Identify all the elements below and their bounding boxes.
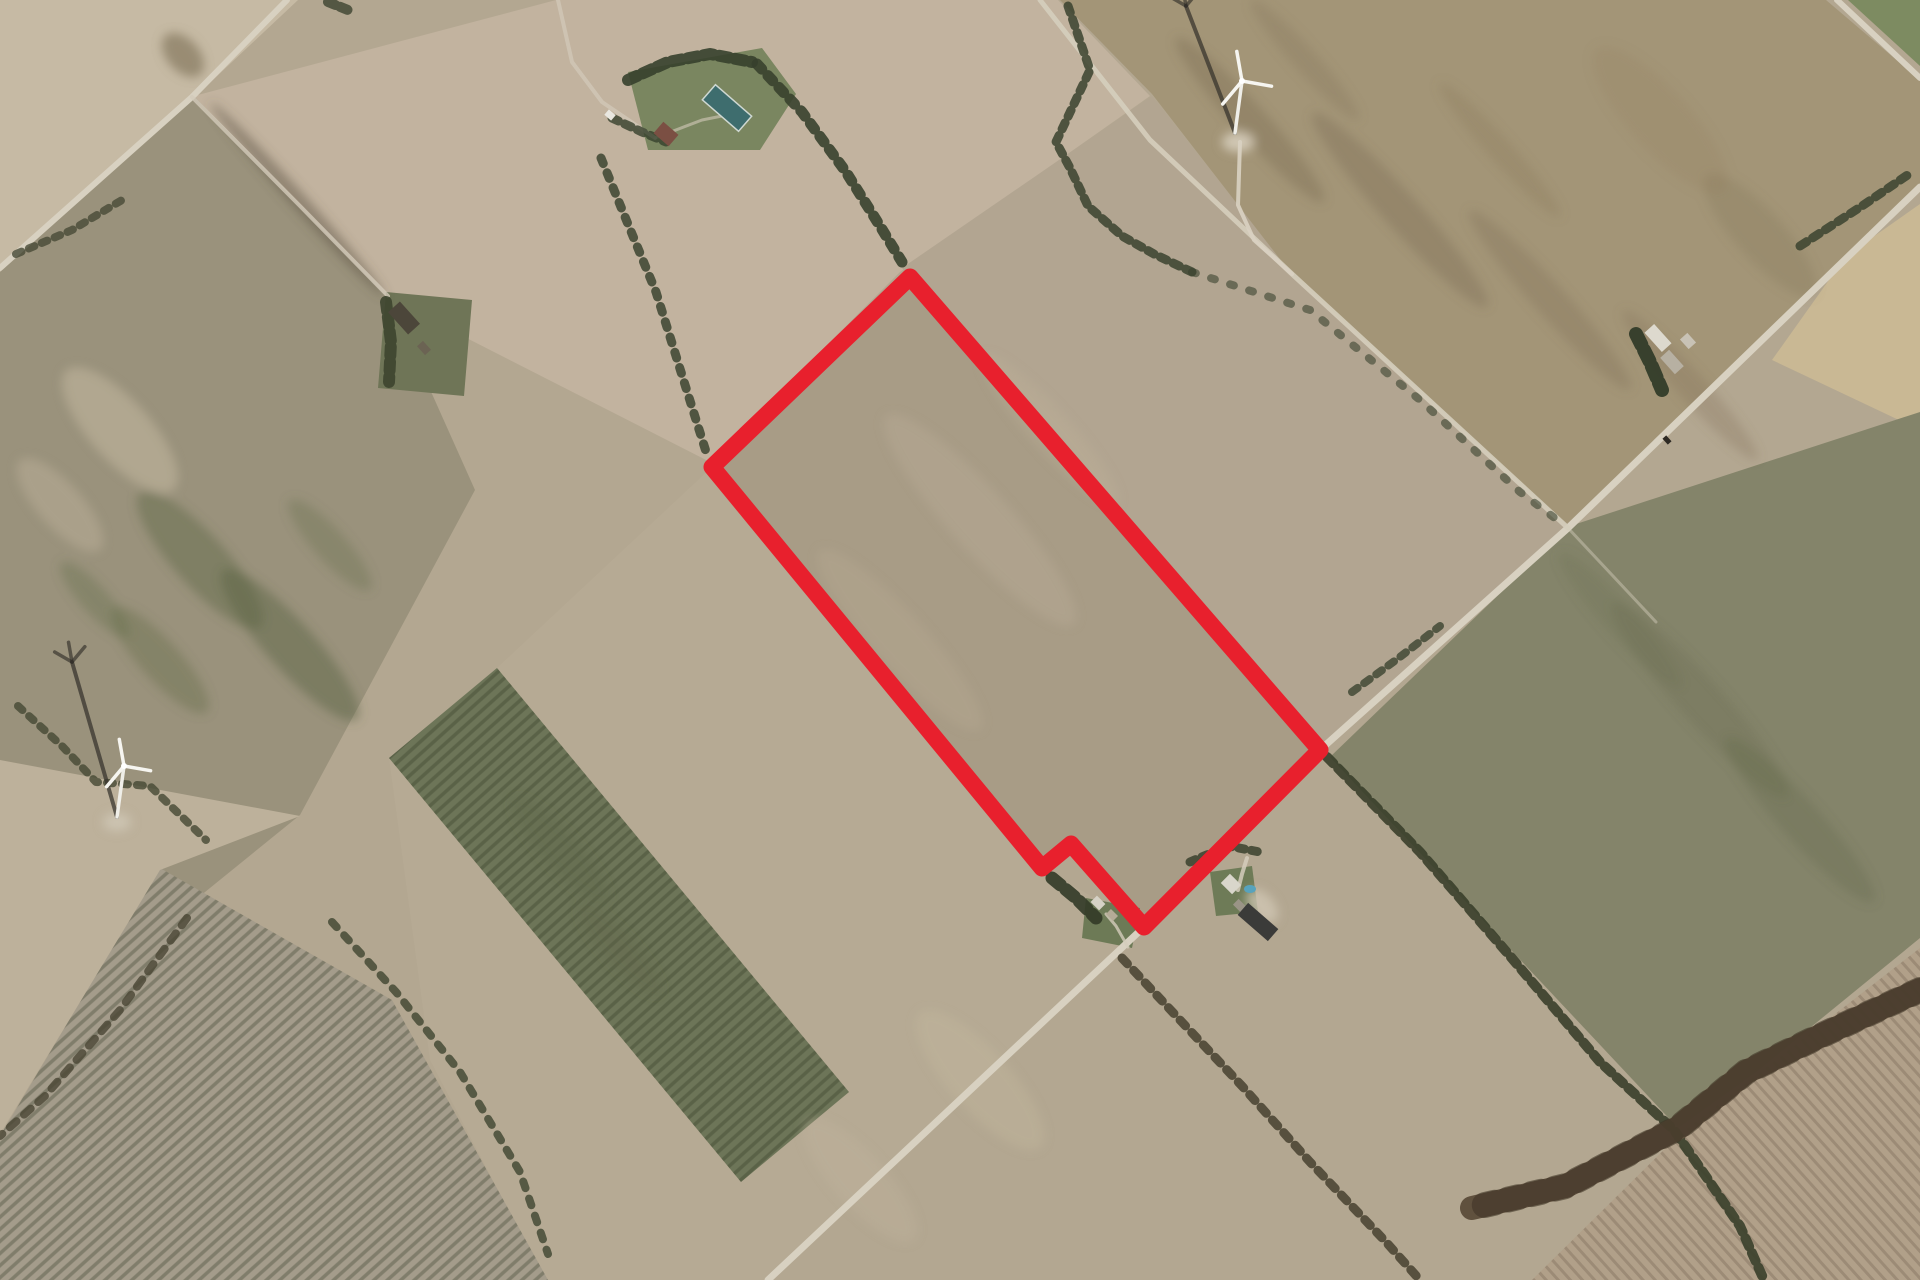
wind-turbine-northeast-nacelle xyxy=(1239,78,1245,84)
backyard-pool xyxy=(1244,885,1256,893)
wind-turbine-west-nacelle xyxy=(121,763,127,769)
satellite-map-view xyxy=(0,0,1920,1280)
aerial-imagery-canvas xyxy=(0,0,1920,1280)
markers-layer xyxy=(1244,885,1256,893)
